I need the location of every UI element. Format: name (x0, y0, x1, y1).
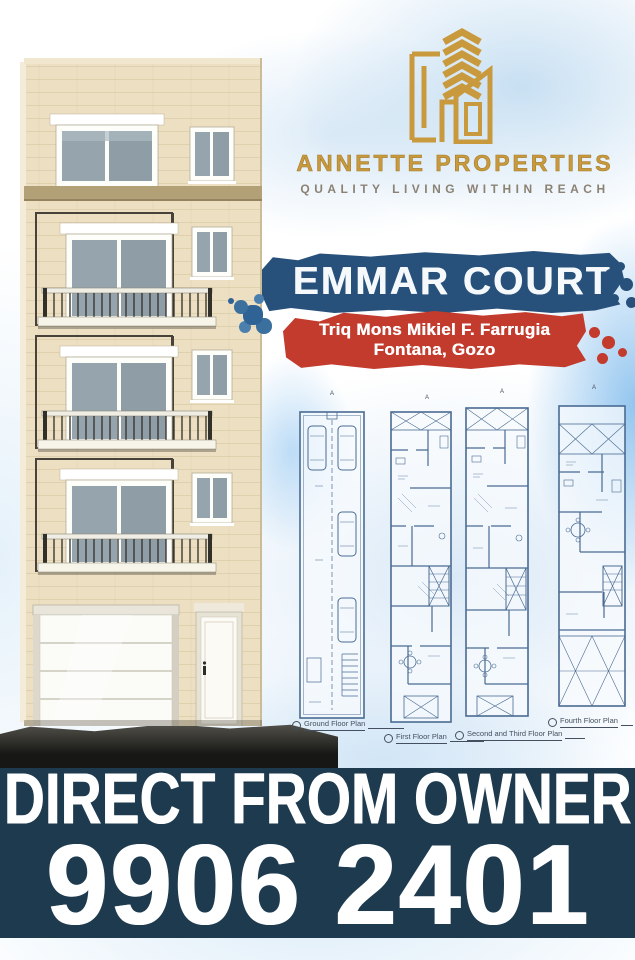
section-marker: A (592, 385, 597, 391)
property-flyer: ANNETTE PROPERTIES QUALITY LIVING WITHIN… (0, 0, 635, 960)
address-line-2: Fontana, Gozo (374, 340, 496, 360)
floor-plan-label-second-third: Second and Third Floor Plan (455, 730, 585, 741)
plan-label-text: Fourth Floor Plan (560, 717, 618, 728)
address-line-1: Triq Mons Mikiel F. Farrugia (319, 320, 550, 340)
plan-label-rule (565, 738, 585, 739)
plan-label-bullet (292, 721, 301, 730)
contact-banner: DIRECT FROM OWNER 9906 2401 (0, 768, 635, 938)
plan-label-text: Ground Floor Plan (304, 720, 365, 731)
dark-blue-paint-splatter (228, 298, 234, 304)
entrance-door (194, 603, 244, 726)
address-banner: Triq Mons Mikiel F. Farrugia Fontana, Go… (283, 311, 586, 369)
street-ground-shadow (0, 722, 338, 768)
building-elevation-render (20, 54, 265, 726)
plan-label-bullet (455, 731, 464, 740)
floor-plan-second-third (463, 400, 531, 730)
brand-header: ANNETTE PROPERTIES QUALITY LIVING WITHIN… (278, 24, 632, 196)
brand-tagline: QUALITY LIVING WITHIN REACH (278, 182, 632, 196)
brand-name: ANNETTE PROPERTIES (278, 150, 632, 177)
plan-label-bullet (548, 718, 557, 727)
annette-properties-logo-icon (396, 24, 514, 144)
plan-label-rule (368, 728, 404, 729)
floor-plan-first (388, 406, 454, 728)
red-paint-splatter (578, 322, 583, 327)
plan-label-rule (450, 741, 484, 742)
floor-plan-ground (297, 402, 367, 724)
plan-label-text: Second and Third Floor Plan (467, 730, 562, 741)
plan-label-rule (621, 725, 633, 726)
section-marker: A (330, 391, 335, 397)
project-name-banner: EMMAR COURT (262, 251, 624, 313)
section-marker: A (500, 389, 505, 395)
floor-level (36, 213, 234, 575)
floor-plan-fourth (556, 396, 628, 722)
floor-plan-label-ground: Ground Floor Plan (292, 720, 404, 731)
garage-door (33, 605, 179, 726)
plan-label-bullet (384, 734, 393, 743)
blue-paint-splatter (600, 262, 605, 267)
footer-phone-number: 9906 2401 (45, 836, 589, 936)
section-marker: A (425, 395, 430, 401)
project-name: EMMAR COURT (275, 260, 612, 304)
plan-label-text: First Floor Plan (396, 733, 447, 744)
floor-plan-label-fourth: Fourth Floor Plan (548, 717, 633, 728)
